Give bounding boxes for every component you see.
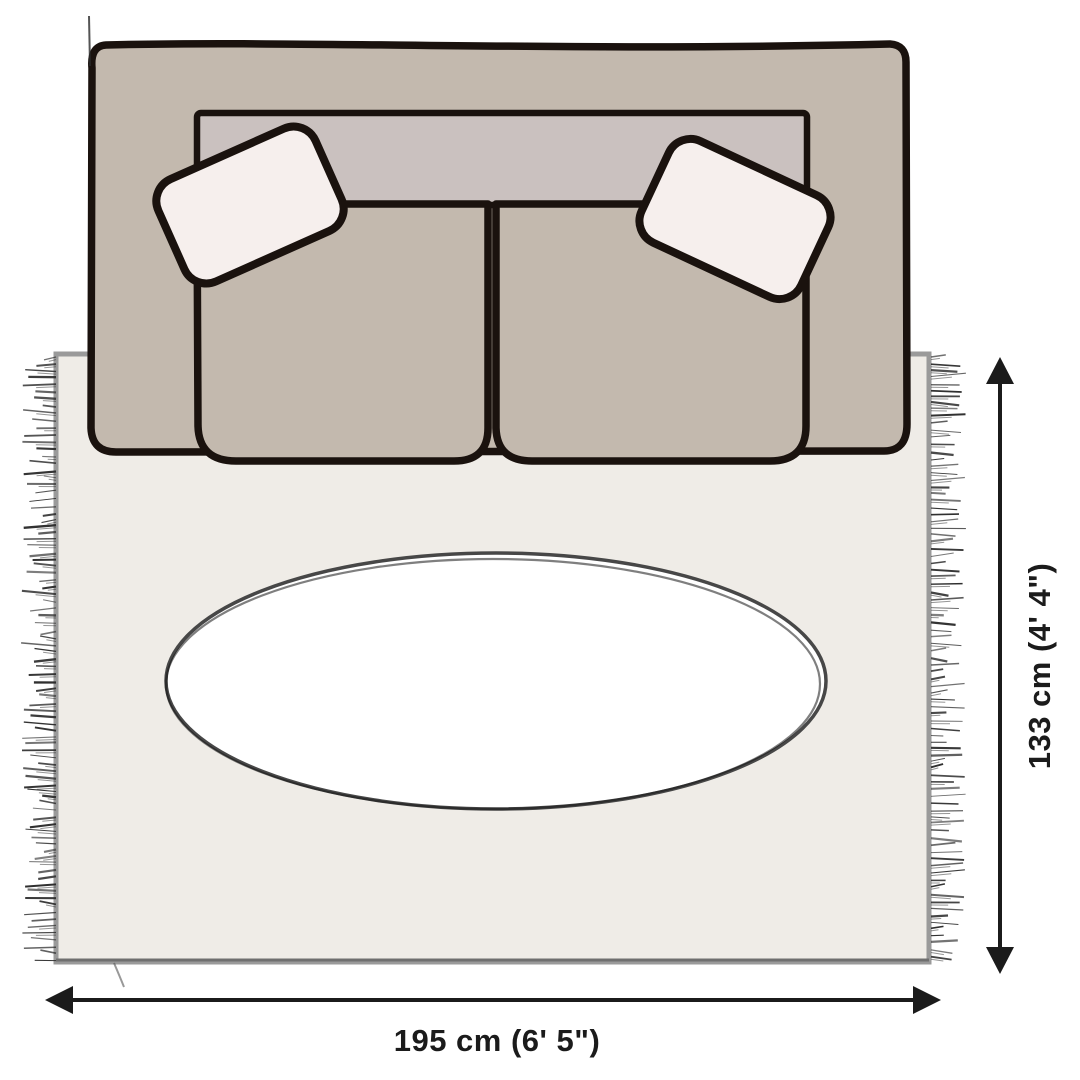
rug-dimension-diagram: 133 cm (4' 4") 195 cm (6' 5") (0, 0, 1080, 1080)
height-dimension-label: 133 cm (4' 4") (1022, 563, 1057, 770)
diagram-canvas: 133 cm (4' 4") 195 cm (6' 5") (0, 0, 1080, 1080)
sofa-sketch-overshoot (89, 16, 90, 66)
width-dimension-label: 195 cm (6' 5") (394, 1023, 601, 1058)
sofa (89, 16, 907, 461)
